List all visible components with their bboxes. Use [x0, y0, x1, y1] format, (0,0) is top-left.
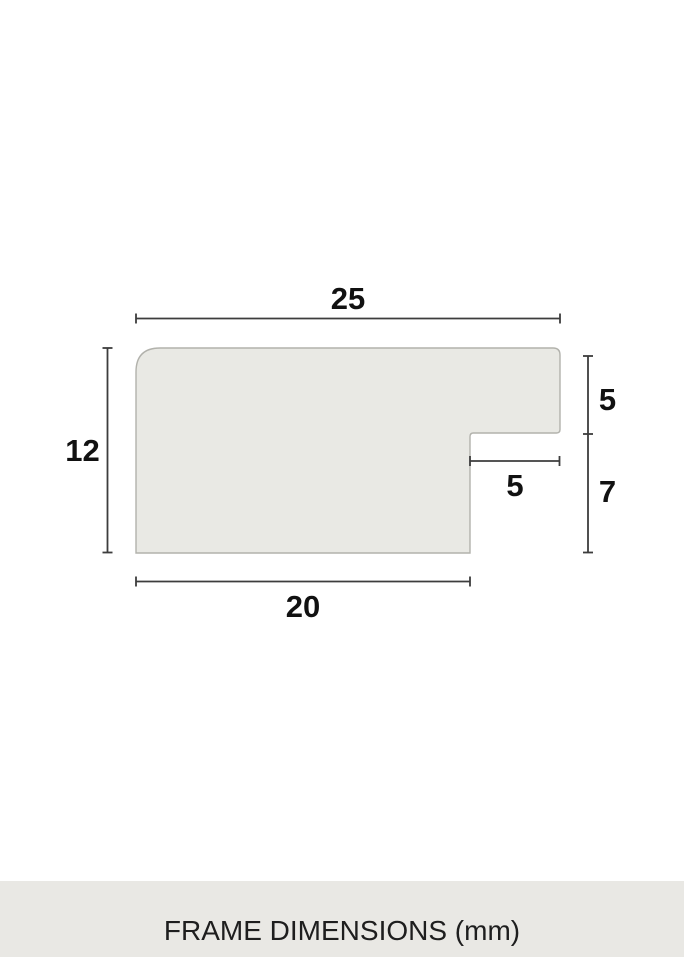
svg-text:5: 5	[506, 468, 523, 503]
svg-text:12: 12	[65, 433, 99, 468]
svg-text:25: 25	[331, 281, 365, 316]
svg-text:7: 7	[599, 474, 616, 509]
svg-text:5: 5	[599, 382, 616, 417]
svg-text:FRAME DIMENSIONS (mm): FRAME DIMENSIONS (mm)	[164, 915, 520, 946]
svg-text:20: 20	[286, 589, 320, 624]
